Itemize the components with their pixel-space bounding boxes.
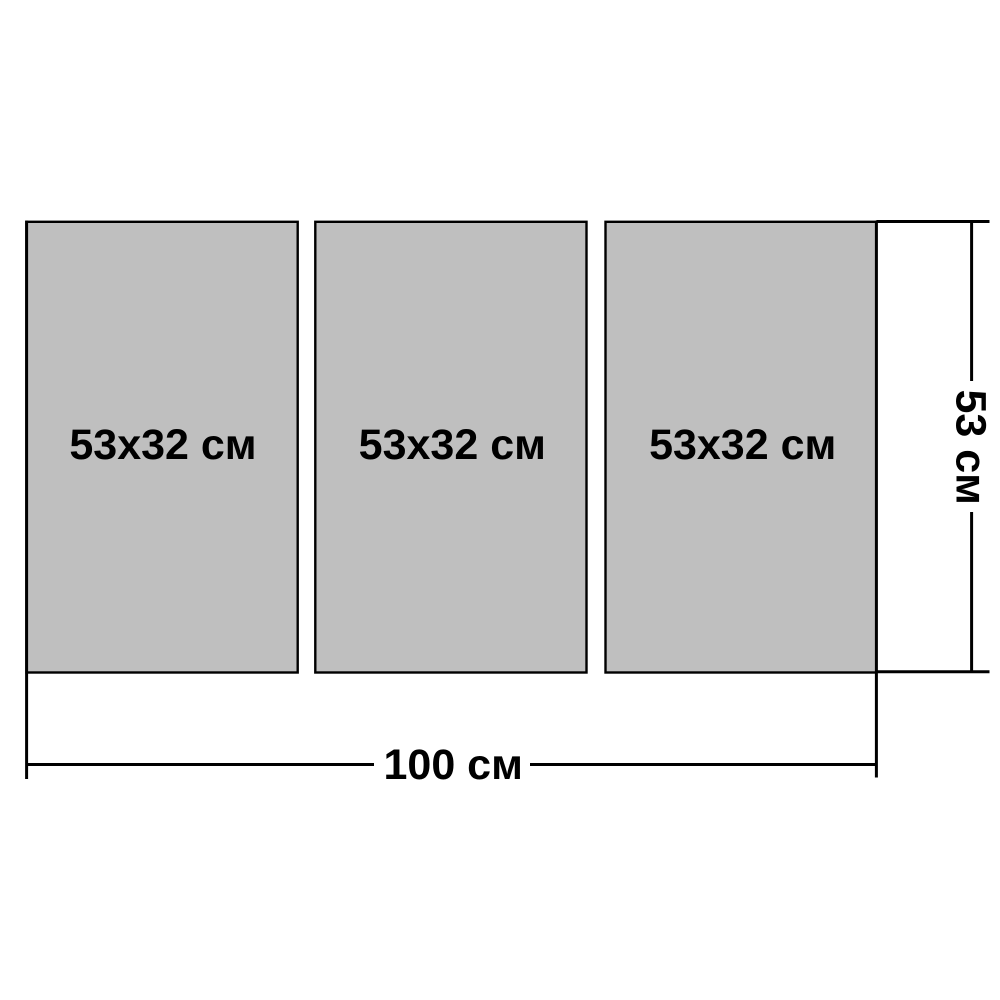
svg-text:100 см: 100 см (383, 741, 522, 789)
svg-text:53x32 см: 53x32 см (359, 421, 546, 469)
svg-text:53x32 см: 53x32 см (649, 421, 836, 469)
svg-text:53x32 см: 53x32 см (69, 421, 256, 469)
svg-text:53 см: 53 см (947, 389, 995, 505)
